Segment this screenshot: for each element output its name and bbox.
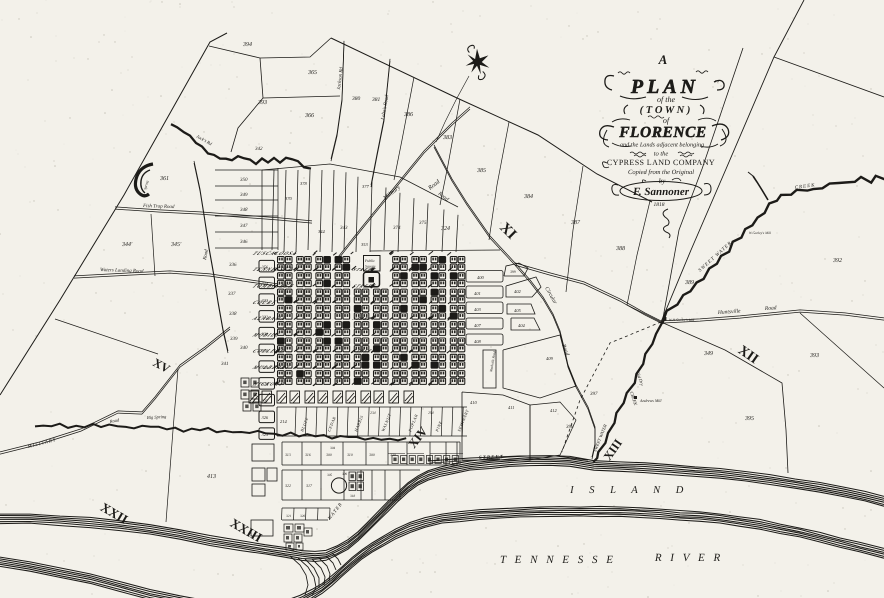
svg-text:395: 395 xyxy=(744,416,754,422)
svg-text:343: 343 xyxy=(340,225,348,231)
svg-text:300: 300 xyxy=(369,453,375,457)
svg-text:365: 365 xyxy=(307,70,317,76)
svg-text:349: 349 xyxy=(703,351,713,357)
svg-text:321: 321 xyxy=(286,514,291,518)
svg-text:322: 322 xyxy=(285,483,291,488)
svg-text:Fish Trap Road: Fish Trap Road xyxy=(142,203,175,210)
svg-text:413: 413 xyxy=(207,474,216,480)
svg-text:TOMBIGBEE: TOMBIGBEE xyxy=(250,284,295,290)
svg-text:ALABAMA: ALABAMA xyxy=(249,316,287,322)
svg-text:345': 345' xyxy=(170,242,182,248)
svg-text:377: 377 xyxy=(362,184,370,189)
svg-text:COLLEGE: COLLEGE xyxy=(250,349,287,355)
svg-text:342: 342 xyxy=(255,146,263,152)
svg-text:375: 375 xyxy=(419,220,427,226)
svg-text:to the: to the xyxy=(654,151,669,158)
svg-text:330: 330 xyxy=(390,453,396,457)
svg-text:407: 407 xyxy=(474,323,482,328)
svg-text:353: 353 xyxy=(361,242,369,247)
svg-text:341: 341 xyxy=(221,361,229,367)
svg-text:1818: 1818 xyxy=(654,202,665,208)
svg-text:( T O W N ): ( T O W N ) xyxy=(640,105,691,116)
svg-text:337: 337 xyxy=(228,291,236,297)
svg-text:316: 316 xyxy=(305,453,311,457)
svg-text:336: 336 xyxy=(229,262,237,268)
svg-text:385: 385 xyxy=(476,168,486,174)
svg-text:405: 405 xyxy=(514,308,522,313)
svg-text:Public: Public xyxy=(364,259,375,263)
svg-text:346: 346 xyxy=(240,239,248,245)
svg-text:TENNESSEE: TENNESSEE xyxy=(250,267,295,273)
svg-text:389: 389 xyxy=(684,280,694,286)
svg-text:324: 324 xyxy=(440,226,450,232)
svg-text:Andrews Mill: Andrews Mill xyxy=(639,398,662,403)
svg-text:234: 234 xyxy=(370,411,376,415)
svg-text:383: 383 xyxy=(442,135,452,141)
svg-text:401: 401 xyxy=(474,291,481,296)
svg-text:411: 411 xyxy=(508,405,514,410)
svg-text:412: 412 xyxy=(550,408,558,413)
svg-text:344': 344' xyxy=(121,242,133,248)
svg-text:CYPRESS LAND COMPANY: CYPRESS LAND COMPANY xyxy=(607,158,715,167)
svg-text:393: 393 xyxy=(809,353,819,359)
svg-text:310: 310 xyxy=(347,453,353,457)
svg-text:254: 254 xyxy=(428,411,434,415)
svg-text:I S L A N D: I S L A N D xyxy=(569,485,690,496)
svg-text:MULBERRY: MULBERRY xyxy=(249,365,292,371)
svg-text:FLORENCE: FLORENCE xyxy=(618,124,707,141)
svg-text:W.H.Gurley's Mill: W.H.Gurley's Mill xyxy=(669,318,694,322)
svg-text:300: 300 xyxy=(326,453,332,457)
svg-text:394: 394 xyxy=(242,42,252,48)
svg-text:378: 378 xyxy=(300,181,308,186)
svg-text:370: 370 xyxy=(285,196,293,201)
svg-text:313: 313 xyxy=(285,453,291,457)
svg-text:386: 386 xyxy=(403,112,413,118)
svg-text:397: 397 xyxy=(590,391,598,397)
svg-text:388: 388 xyxy=(615,246,625,252)
svg-text:T E N N E S S E: T E N N E S S E xyxy=(500,554,616,566)
svg-text:348: 348 xyxy=(240,207,248,213)
svg-text:366: 366 xyxy=(304,113,314,119)
svg-text:and the Lands adjacent belongi: and the Lands adjacent belonging xyxy=(620,142,704,149)
svg-text:384: 384 xyxy=(523,194,533,200)
svg-text:344: 344 xyxy=(318,229,326,234)
svg-text:R I V E R: R I V E R xyxy=(654,552,723,564)
svg-text:304: 304 xyxy=(330,446,335,450)
svg-text:320: 320 xyxy=(300,514,305,518)
svg-text:Copied from the Original: Copied from the Original xyxy=(628,169,694,176)
svg-text:325: 325 xyxy=(262,432,269,437)
svg-text:A: A xyxy=(658,52,668,67)
svg-text:361: 361 xyxy=(159,176,169,182)
svg-text:309: 309 xyxy=(342,472,347,476)
svg-text:402: 402 xyxy=(514,289,522,294)
svg-text:404: 404 xyxy=(518,323,526,328)
svg-text:340: 340 xyxy=(240,345,248,351)
svg-text:374: 374 xyxy=(393,225,401,231)
svg-text:339: 339 xyxy=(230,336,238,342)
svg-text:410: 410 xyxy=(470,400,478,405)
svg-text:409: 409 xyxy=(546,356,554,361)
svg-text:326: 326 xyxy=(262,415,269,420)
svg-text:399: 399 xyxy=(510,270,516,274)
svg-text:by: by xyxy=(659,177,667,185)
svg-text:403: 403 xyxy=(474,307,482,312)
svg-text:of the: of the xyxy=(657,95,675,104)
svg-text:338: 338 xyxy=(229,311,237,317)
svg-text:392: 392 xyxy=(832,258,842,264)
svg-text:Big Spring: Big Spring xyxy=(147,414,167,420)
svg-text:Road: Road xyxy=(764,305,777,312)
svg-text:387: 387 xyxy=(570,220,581,226)
svg-text:400: 400 xyxy=(477,275,485,280)
svg-text:393: 393 xyxy=(257,100,267,106)
svg-text:349: 349 xyxy=(240,192,248,198)
svg-text:408: 408 xyxy=(474,339,482,344)
svg-text:380: 380 xyxy=(351,96,361,102)
svg-text:,,: ,, xyxy=(715,73,720,83)
svg-text:F. Sannoner: F. Sannoner xyxy=(632,186,690,198)
svg-text:347: 347 xyxy=(240,223,248,229)
svg-text:W.Gurley's Mill: W.Gurley's Mill xyxy=(749,231,771,235)
svg-text:350: 350 xyxy=(240,177,248,183)
svg-text:305: 305 xyxy=(327,473,332,477)
svg-text:318: 318 xyxy=(350,494,355,498)
svg-text:317: 317 xyxy=(306,483,313,488)
svg-text:381: 381 xyxy=(371,97,381,103)
svg-text:214: 214 xyxy=(280,419,288,424)
